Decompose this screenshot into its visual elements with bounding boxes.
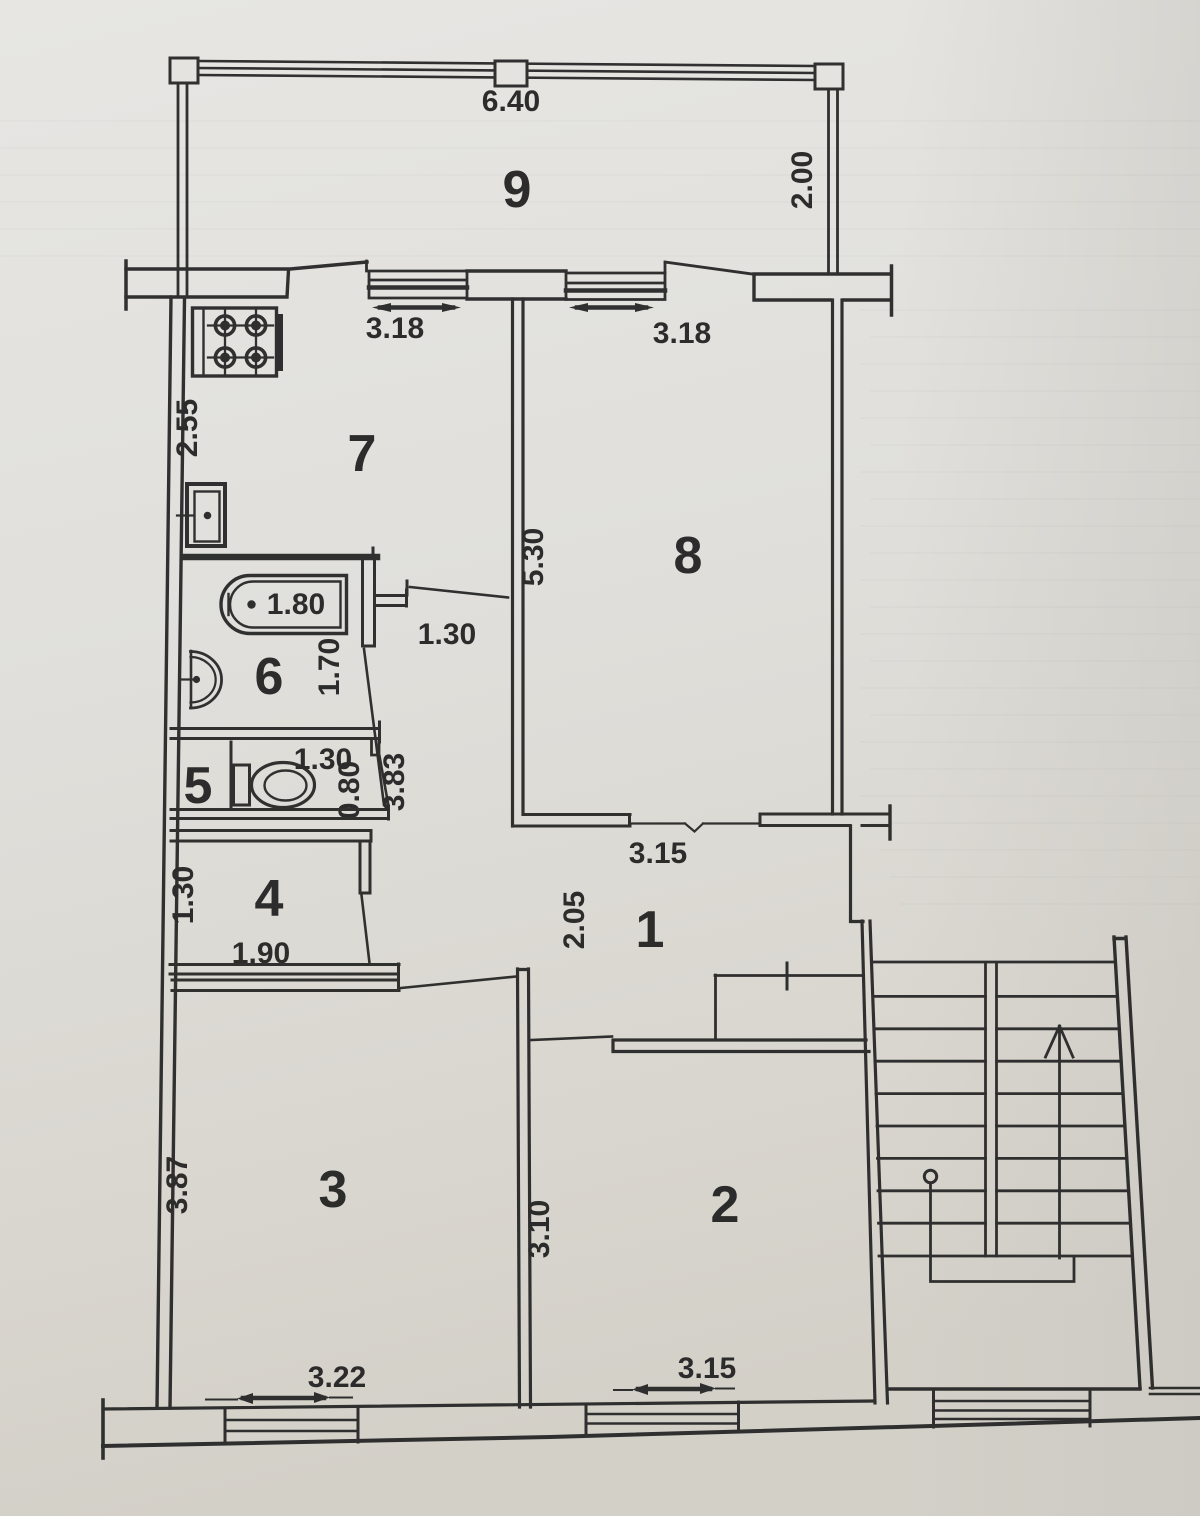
svg-text:6.40: 6.40: [482, 85, 540, 118]
svg-text:3.15: 3.15: [678, 1352, 736, 1385]
svg-text:3.10: 3.10: [523, 1200, 556, 1258]
svg-text:5: 5: [184, 757, 213, 815]
svg-text:1: 1: [636, 901, 665, 959]
svg-text:4: 4: [255, 870, 284, 928]
svg-text:6: 6: [255, 648, 284, 706]
svg-text:2.00: 2.00: [786, 151, 819, 209]
svg-text:1.70: 1.70: [313, 638, 346, 696]
svg-text:7: 7: [348, 425, 377, 483]
svg-text:3.22: 3.22: [308, 1361, 366, 1394]
svg-text:3.87: 3.87: [161, 1156, 194, 1214]
svg-text:3.18: 3.18: [366, 312, 424, 345]
svg-text:1.30: 1.30: [167, 866, 200, 924]
svg-text:2.05: 2.05: [558, 891, 591, 949]
svg-text:9: 9: [503, 161, 532, 219]
svg-text:1.30: 1.30: [418, 618, 476, 651]
svg-text:8: 8: [674, 527, 703, 585]
svg-text:2: 2: [711, 1176, 740, 1234]
svg-text:2.55: 2.55: [171, 399, 204, 457]
svg-text:3.15: 3.15: [629, 837, 687, 870]
svg-text:3.18: 3.18: [653, 317, 711, 350]
svg-text:3: 3: [319, 1161, 348, 1219]
svg-text:3.83: 3.83: [378, 753, 411, 811]
svg-text:5.30: 5.30: [517, 528, 550, 586]
svg-text:1.80: 1.80: [267, 588, 325, 621]
